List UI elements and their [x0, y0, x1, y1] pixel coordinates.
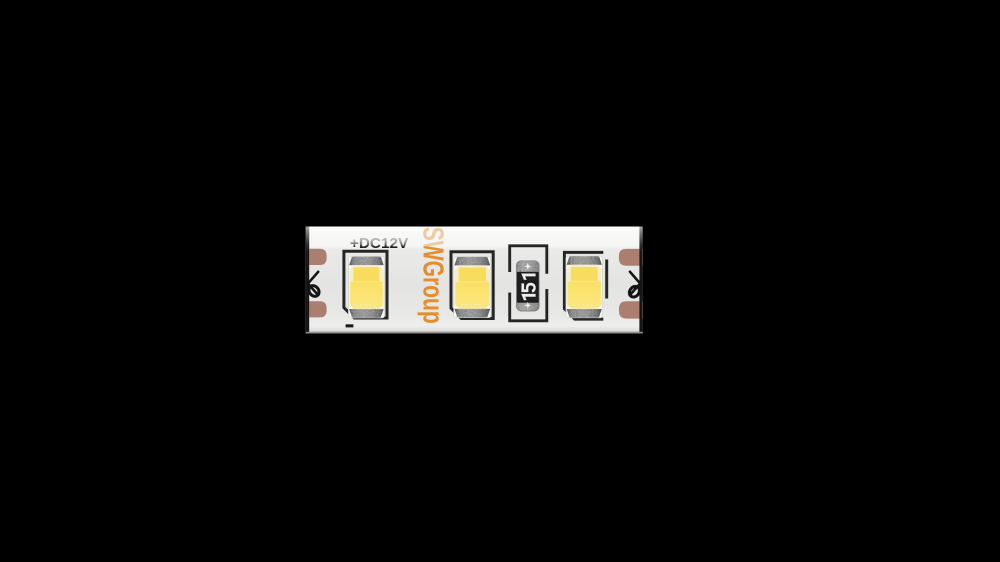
svg-text:+DC12V: +DC12V — [350, 236, 409, 252]
